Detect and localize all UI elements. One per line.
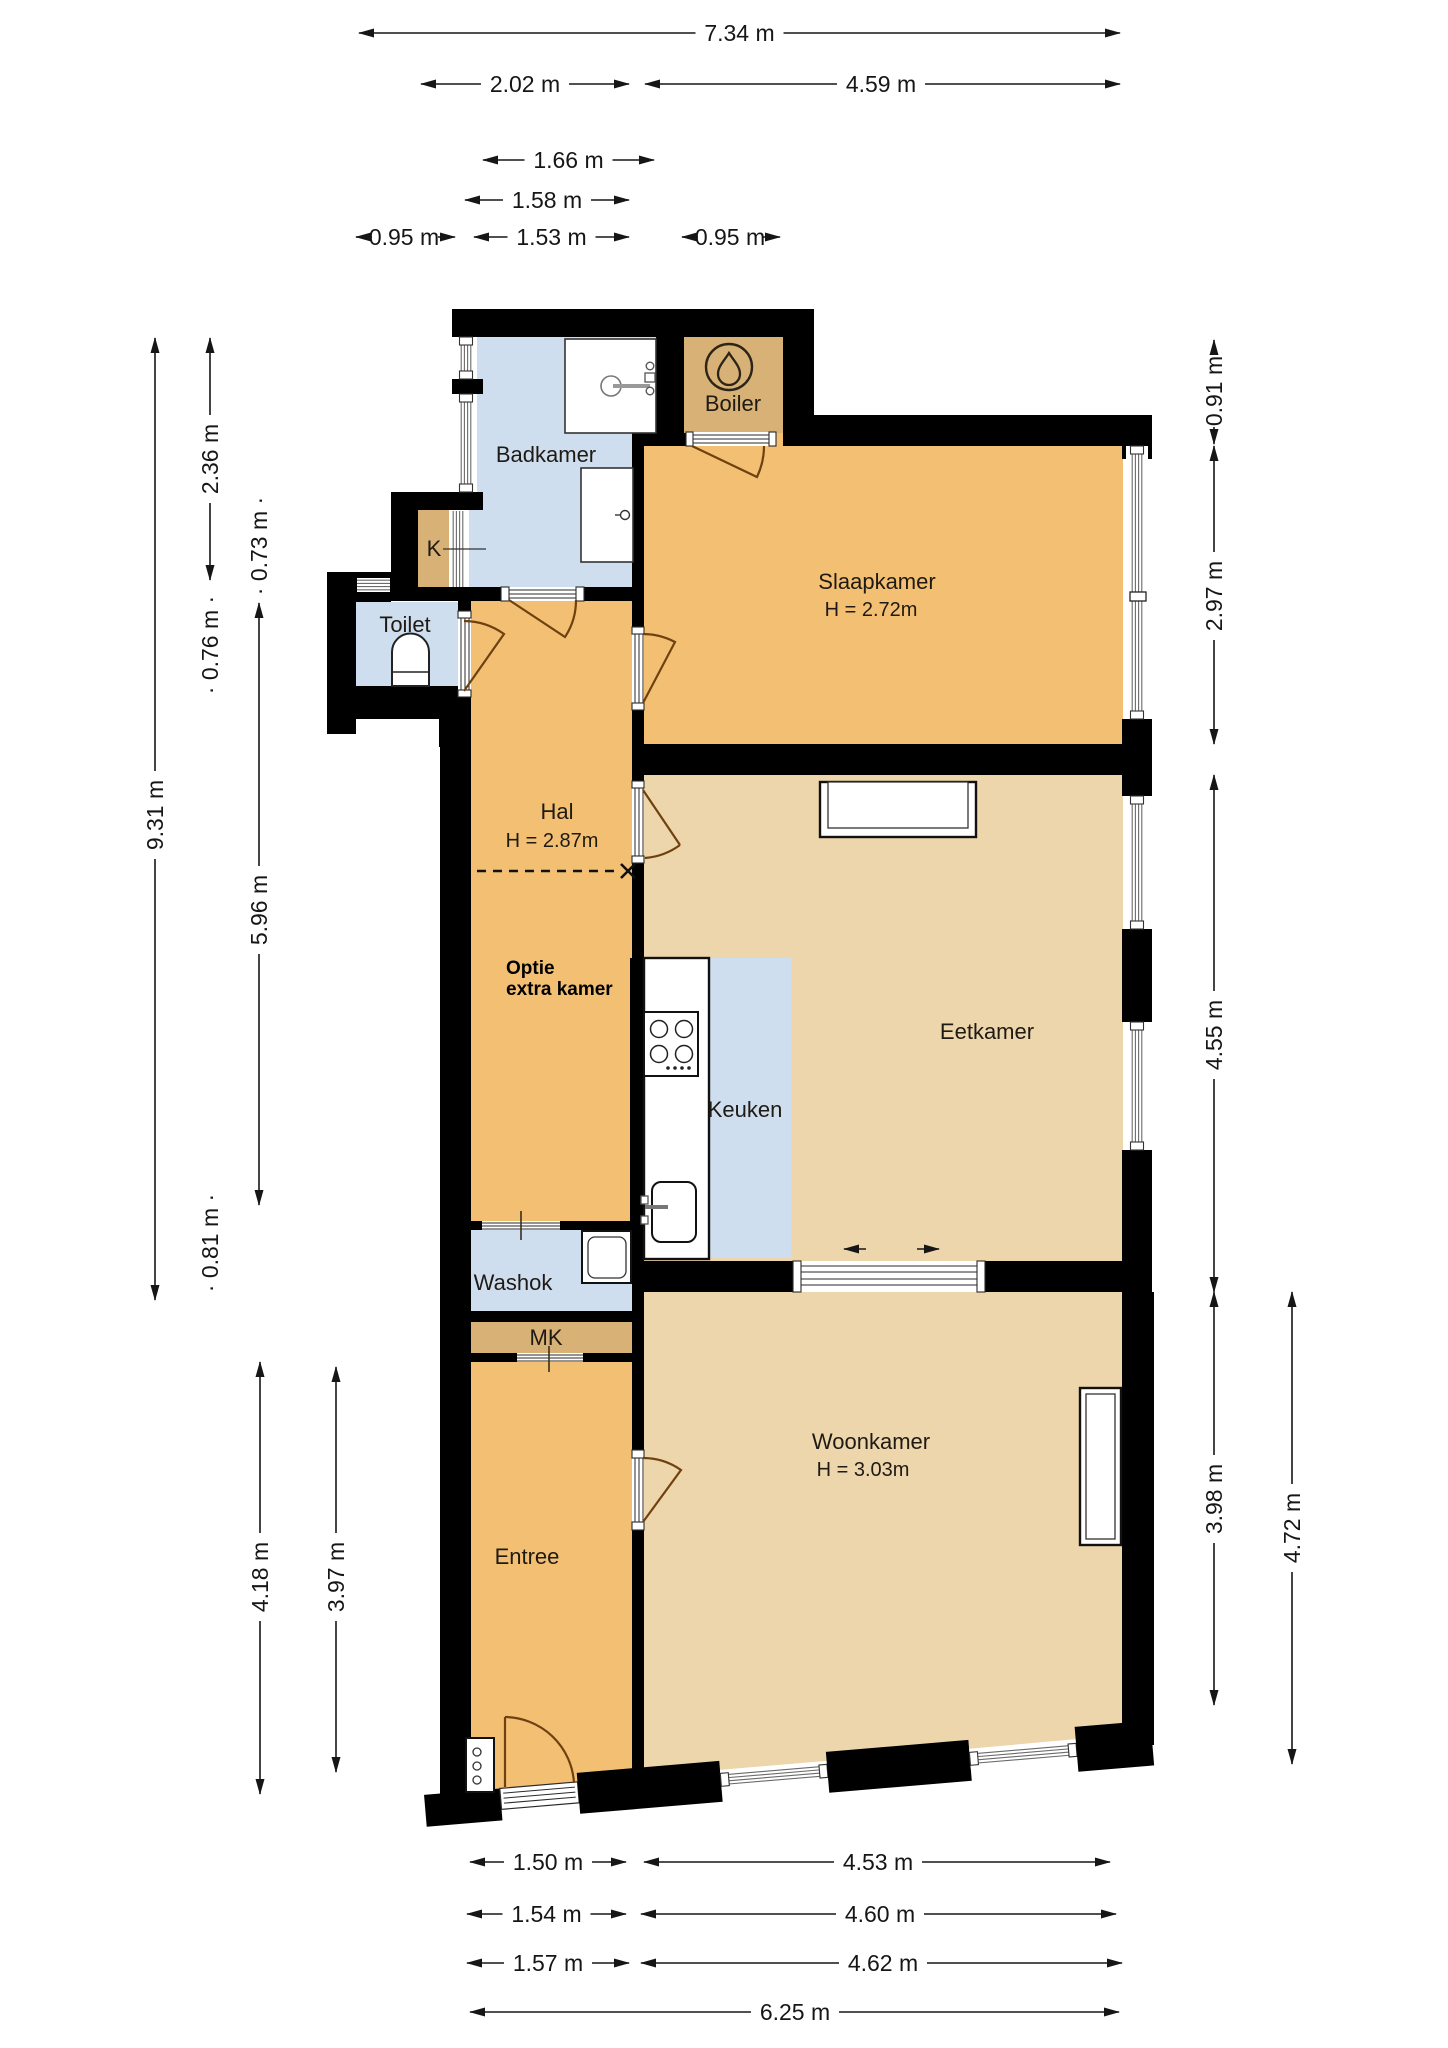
svg-text:Toilet: Toilet [379,612,430,637]
svg-text:0.95 m: 0.95 m [695,224,765,250]
svg-text:9.31 m: 9.31 m [142,780,168,850]
svg-text:Hal: Hal [540,799,573,824]
svg-text:H = 3.03m: H = 3.03m [817,1459,910,1481]
svg-text:4.55 m: 4.55 m [1201,1000,1227,1070]
svg-text:1.58 m: 1.58 m [512,187,582,213]
svg-text:Badkamer: Badkamer [496,442,596,467]
svg-text:Slaapkamer: Slaapkamer [818,569,935,594]
svg-text:· 0.76 m ·: · 0.76 m · [197,596,223,694]
svg-text:extra kamer: extra kamer [506,979,613,1000]
svg-text:6.25 m: 6.25 m [760,1999,830,2025]
svg-text:· 0.81 m ·: · 0.81 m · [197,1194,223,1292]
svg-text:5.96 m: 5.96 m [246,875,272,945]
svg-text:4.72 m: 4.72 m [1279,1493,1305,1563]
svg-text:2.02 m: 2.02 m [490,71,560,97]
svg-text:· 0.73 m ·: · 0.73 m · [246,497,272,595]
svg-text:4.59 m: 4.59 m [846,71,916,97]
svg-text:4.53 m: 4.53 m [843,1849,913,1875]
svg-text:2.97 m: 2.97 m [1201,561,1227,631]
svg-text:Eetkamer: Eetkamer [940,1019,1034,1044]
svg-text:H = 2.87m: H = 2.87m [506,830,599,852]
svg-text:0.95 m: 0.95 m [369,224,439,250]
svg-text:0.91 m: 0.91 m [1201,356,1227,426]
svg-text:7.34 m: 7.34 m [704,20,774,46]
svg-text:1.53 m: 1.53 m [516,224,586,250]
svg-text:Boiler: Boiler [705,391,761,416]
svg-text:Optie: Optie [506,958,555,979]
svg-text:Washok: Washok [474,1270,554,1295]
svg-text:Woonkamer: Woonkamer [812,1429,930,1454]
svg-text:4.62 m: 4.62 m [848,1950,918,1976]
svg-text:3.98 m: 3.98 m [1201,1464,1227,1534]
svg-text:4.18 m: 4.18 m [247,1542,273,1612]
svg-text:1.57 m: 1.57 m [513,1950,583,1976]
svg-text:1.50 m: 1.50 m [513,1849,583,1875]
svg-text:MK: MK [530,1325,563,1350]
svg-text:Keuken: Keuken [708,1097,783,1122]
svg-text:1.66 m: 1.66 m [533,147,603,173]
svg-text:1.54 m: 1.54 m [511,1901,581,1927]
svg-text:H = 2.72m: H = 2.72m [825,599,918,621]
svg-text:Entree: Entree [495,1544,560,1569]
svg-text:K: K [427,536,442,561]
svg-text:3.97 m: 3.97 m [323,1542,349,1612]
svg-text:4.60 m: 4.60 m [845,1901,915,1927]
svg-text:2.36 m: 2.36 m [197,424,223,494]
